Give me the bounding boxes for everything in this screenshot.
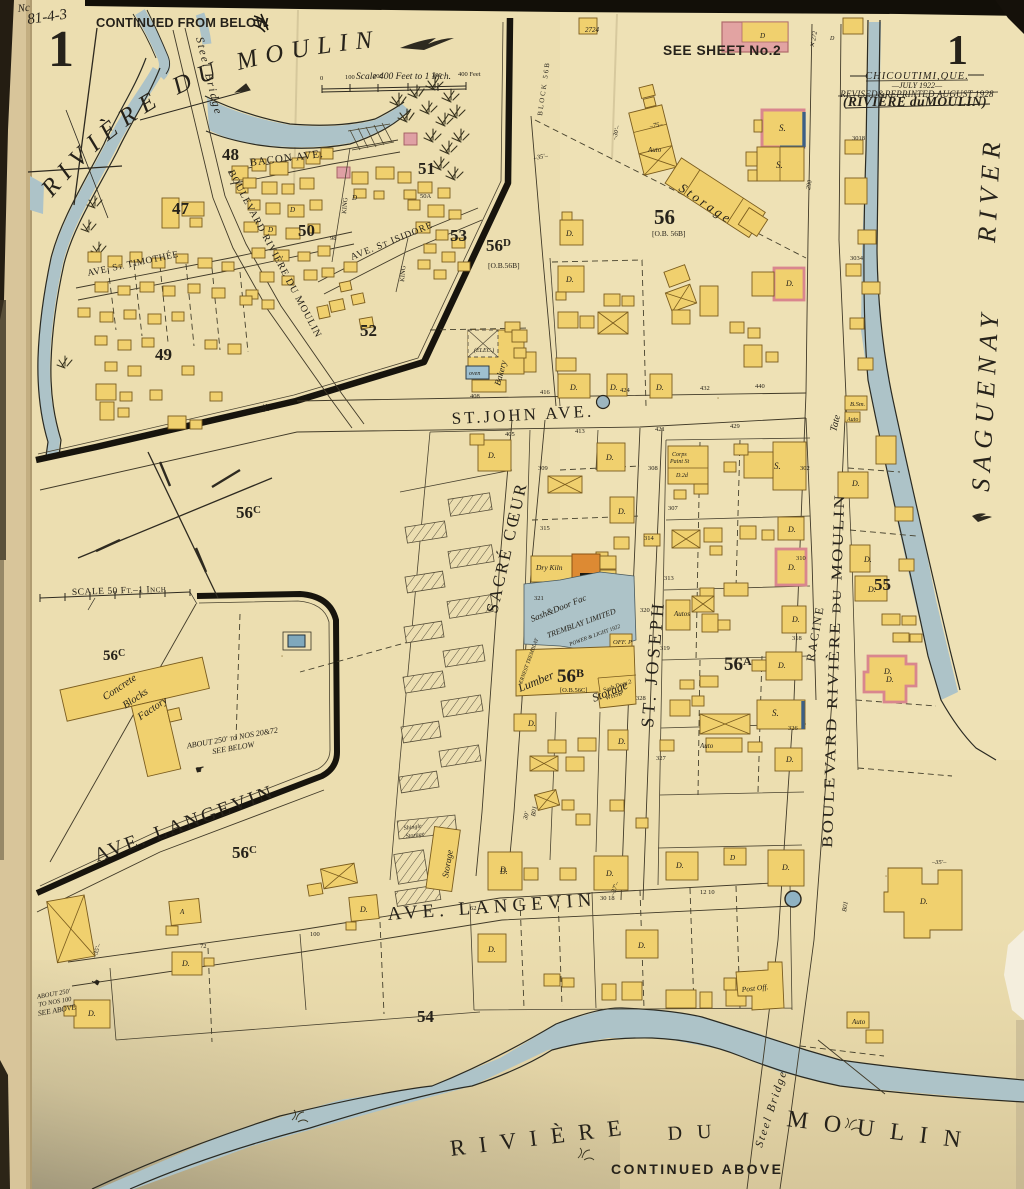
svg-text:D.: D. (527, 719, 536, 728)
svg-text:413: 413 (575, 428, 585, 435)
svg-text:72: 72 (200, 943, 207, 950)
svg-text:408: 408 (470, 393, 480, 400)
svg-text:Paint St: Paint St (669, 459, 689, 465)
svg-text:S.: S. (774, 461, 781, 471)
svg-text:309: 309 (538, 465, 548, 472)
svg-text:321: 321 (534, 595, 544, 602)
svg-text:315: 315 (540, 525, 550, 532)
svg-text:[O.B. 56B]: [O.B. 56B] (652, 229, 686, 238)
svg-text:D.: D. (609, 383, 618, 392)
svg-text:1: 1 (947, 28, 968, 74)
svg-text:(RIVIÈRE duMOULIN): (RIVIÈRE duMOULIN) (843, 94, 987, 109)
svg-text:D.: D. (499, 867, 508, 876)
svg-text:48: 48 (222, 145, 239, 164)
svg-text:62: 62 (470, 905, 477, 912)
svg-text:56: 56 (654, 205, 675, 229)
svg-text:98: 98 (330, 235, 337, 242)
svg-text:440: 440 (755, 383, 765, 390)
svg-text:50: 50 (298, 221, 315, 240)
svg-text:D.: D. (785, 279, 794, 288)
svg-text:D.: D. (487, 945, 496, 954)
svg-text:D.: D. (883, 667, 892, 676)
svg-text:–35'–: –35'– (931, 859, 947, 866)
svg-text:47: 47 (172, 199, 190, 218)
svg-text:D.: D. (867, 585, 876, 594)
svg-text:200: 200 (373, 73, 383, 80)
svg-text:52: 52 (360, 321, 377, 340)
svg-text:D.: D. (569, 383, 578, 392)
svg-text:KING: KING (399, 265, 407, 282)
svg-text:D: D (351, 194, 357, 202)
svg-text:1: 1 (48, 21, 74, 78)
svg-text:Corps: Corps (672, 452, 687, 458)
svg-text:400 Feet: 400 Feet (458, 71, 481, 78)
svg-text:318: 318 (792, 635, 802, 642)
svg-text:B.Sm.: B.Sm. (850, 401, 866, 408)
svg-text:CONTINUED FROM BELOW: CONTINUED FROM BELOW (96, 15, 269, 30)
svg-text:Auto: Auto (647, 146, 662, 154)
svg-text:D: D (289, 206, 295, 214)
svg-text:Auto: Auto (846, 417, 858, 423)
svg-text:D.: D. (637, 941, 646, 950)
svg-text:D.: D. (785, 755, 794, 764)
svg-text:50A: 50A (420, 193, 432, 200)
svg-text:51: 51 (418, 159, 435, 178)
svg-text:D.: D. (851, 479, 860, 488)
svg-text:Auto: Auto (851, 1018, 866, 1026)
svg-text:Auto: Auto (699, 742, 714, 750)
svg-text:328: 328 (636, 695, 646, 702)
svg-text:421: 421 (655, 426, 665, 433)
svg-text:D.: D. (863, 555, 872, 564)
svg-text:0: 0 (320, 75, 323, 82)
svg-text:424: 424 (620, 387, 631, 394)
svg-text:D.: D. (359, 905, 368, 914)
svg-text:[O.B.56C]: [O.B.56C] (560, 687, 587, 694)
svg-text:D.: D. (675, 861, 684, 870)
svg-text:326: 326 (788, 725, 799, 732)
svg-text:308: 308 (648, 465, 658, 472)
svg-text:320: 320 (640, 607, 650, 614)
svg-text:429: 429 (730, 423, 740, 430)
svg-text:53: 53 (450, 226, 467, 245)
svg-text:oven: oven (469, 371, 480, 377)
svg-text:[O.B.56B]: [O.B.56B] (488, 261, 520, 270)
svg-text:D.: D. (787, 525, 796, 534)
svg-text:Autos: Autos (673, 610, 690, 618)
svg-text:313: 313 (664, 575, 674, 582)
svg-text:405: 405 (505, 431, 515, 438)
svg-text:D.: D. (565, 229, 574, 238)
svg-text:D.: D. (87, 1009, 96, 1018)
svg-text:12 10: 12 10 (700, 889, 715, 896)
svg-text:S.: S. (779, 123, 786, 133)
svg-text:D.: D. (885, 675, 894, 684)
svg-text:302: 302 (800, 465, 810, 472)
svg-text:D.: D. (617, 737, 626, 746)
svg-text:D.: D. (181, 959, 190, 968)
svg-text:D.: D. (617, 507, 626, 516)
svg-text:100: 100 (345, 74, 355, 81)
svg-text:D: D (729, 854, 735, 862)
svg-text:SEE SHEET No.2: SEE SHEET No.2 (663, 43, 781, 58)
svg-text:D.: D. (777, 661, 786, 670)
svg-text:54: 54 (417, 1007, 435, 1026)
svg-text:30 18: 30 18 (600, 895, 615, 902)
svg-text:D U: D U (667, 1120, 717, 1145)
svg-text:416: 416 (540, 389, 551, 396)
svg-text:D.: D. (919, 897, 928, 906)
svg-text:314: 314 (644, 535, 655, 542)
svg-text:D.: D. (655, 383, 664, 392)
svg-text:D.: D. (565, 275, 574, 284)
svg-text:100: 100 (310, 931, 320, 938)
svg-text:D: D (829, 36, 835, 42)
svg-text:OFF. P: OFF. P (613, 639, 632, 646)
svg-text:3018: 3018 (852, 135, 865, 142)
svg-text:432: 432 (700, 385, 710, 392)
svg-text:RIVER: RIVER (972, 135, 1007, 245)
svg-text:(ELEC.): (ELEC.) (474, 347, 494, 354)
svg-text:S.: S. (776, 160, 783, 170)
svg-text:D.: D. (605, 869, 614, 878)
svg-text:300: 300 (432, 72, 442, 79)
svg-text:D.2d: D.2d (675, 473, 689, 479)
svg-text:310: 310 (796, 555, 806, 562)
svg-text:A: A (179, 908, 185, 916)
svg-text:327: 327 (656, 755, 667, 762)
svg-text:55: 55 (874, 575, 891, 594)
svg-text:307: 307 (668, 505, 679, 512)
svg-text:D.: D. (487, 451, 496, 460)
svg-text:D.: D. (781, 863, 790, 872)
svg-text:3034: 3034 (850, 255, 864, 262)
svg-text:D.: D. (791, 615, 800, 624)
svg-text:319: 319 (660, 645, 670, 652)
svg-text:2724: 2724 (585, 26, 600, 34)
svg-text:Dry Kiln: Dry Kiln (535, 563, 563, 572)
svg-text:S.: S. (772, 708, 779, 718)
svg-text:KING: KING (341, 197, 349, 214)
svg-text:D: D (267, 226, 273, 234)
svg-text:D.: D. (787, 563, 796, 572)
svg-text:CONTINUED ABOVE: CONTINUED ABOVE (611, 1161, 783, 1177)
svg-text:D.: D. (605, 453, 614, 462)
svg-text:D: D (759, 32, 765, 40)
svg-text:49: 49 (155, 345, 172, 364)
